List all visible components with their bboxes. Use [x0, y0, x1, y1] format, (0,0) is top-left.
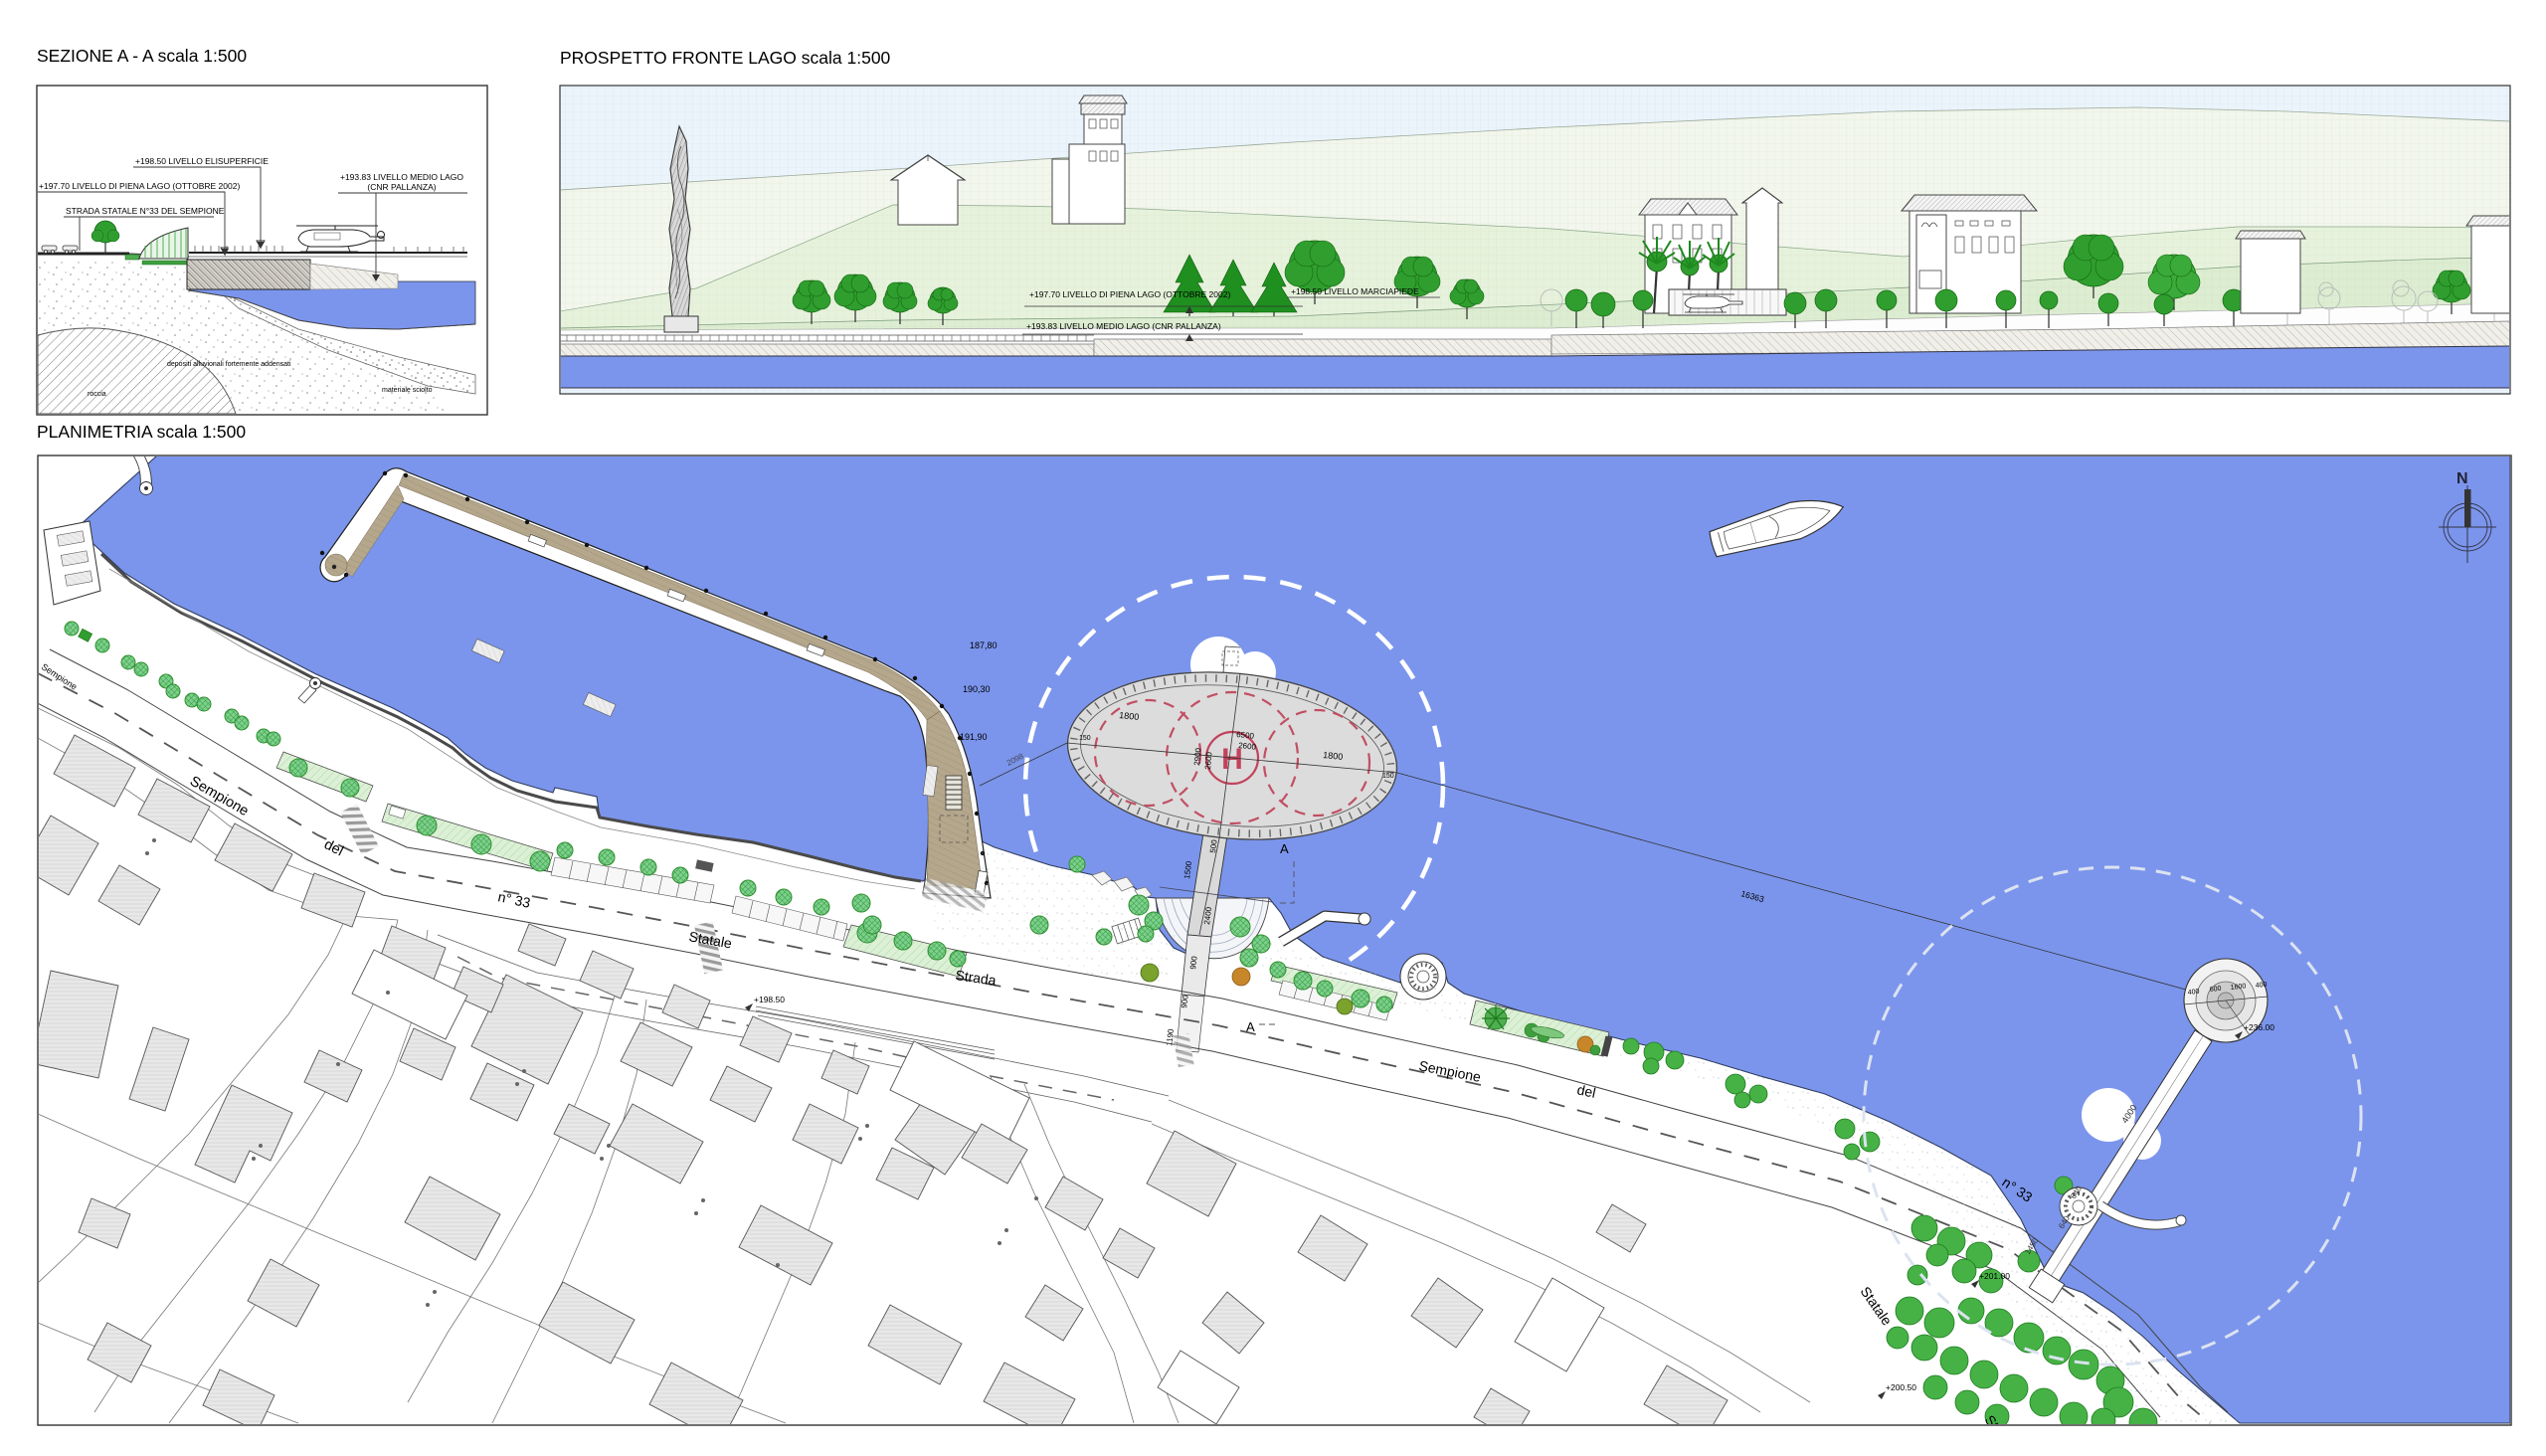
svg-text:+193.83 LIVELLO MEDIO LAGO: +193.83 LIVELLO MEDIO LAGO: [340, 172, 463, 182]
svg-text:400: 400: [2255, 982, 2267, 990]
svg-text:(CNR PALLANZA): (CNR PALLANZA): [367, 182, 436, 192]
svg-text:150: 150: [1382, 773, 1394, 780]
svg-text:A: A: [1280, 841, 1289, 856]
svg-text:1800: 1800: [1323, 750, 1344, 762]
svg-text:2600: 2600: [1203, 751, 1214, 770]
svg-text:+197.70 LIVELLO DI PIENA LAGO: +197.70 LIVELLO DI PIENA LAGO (OTTOBRE 2…: [39, 181, 240, 191]
svg-text:+198.50 LIVELLO MARCIAPIEDE: +198.50 LIVELLO MARCIAPIEDE: [1291, 286, 1419, 296]
svg-text:+236.00: +236.00: [2244, 1022, 2274, 1032]
svg-text:materiale sciolto: materiale sciolto: [382, 387, 433, 394]
svg-text:SEZIONE A - A scala 1:500: SEZIONE A - A scala 1:500: [37, 46, 247, 66]
svg-text:roccia: roccia: [88, 391, 106, 398]
svg-text:N: N: [2456, 470, 2468, 487]
svg-text:187,80: 187,80: [970, 640, 998, 650]
svg-text:900: 900: [1180, 994, 1190, 1008]
svg-text:191,90: 191,90: [960, 732, 988, 742]
svg-text:+201.00: +201.00: [1979, 1271, 2010, 1281]
svg-text:PLANIMETRIA scala 1:500: PLANIMETRIA scala 1:500: [37, 422, 246, 442]
svg-text:2900: 2900: [1192, 747, 1203, 766]
svg-text:depositi alluvionali fortement: depositi alluvionali fortemente addensat…: [167, 361, 291, 368]
svg-text:2600: 2600: [1238, 741, 1257, 752]
svg-text:STRADA STATALE N°33 DEL SEMPIO: STRADA STATALE N°33 DEL SEMPIONE: [66, 206, 225, 216]
svg-text:+198.50: +198.50: [754, 995, 785, 1004]
svg-text:500: 500: [1208, 838, 1219, 853]
svg-text:600: 600: [2209, 986, 2221, 994]
svg-text:+193.83 LIVELLO MEDIO LAGO (CN: +193.83 LIVELLO MEDIO LAGO (CNR PALLANZA…: [1026, 321, 1221, 331]
svg-text:900: 900: [1188, 955, 1199, 970]
svg-text:400: 400: [2187, 989, 2199, 997]
svg-text:PROSPETTO FRONTE LAGO scala 1: PROSPETTO FRONTE LAGO scala 1:500: [560, 48, 891, 68]
svg-text:+197.70 LIVELLO DI PIENA LAGO: +197.70 LIVELLO DI PIENA LAGO (OTTOBRE 2…: [1029, 289, 1230, 299]
svg-text:+198.50 LIVELLO ELISUPERFICIE: +198.50 LIVELLO ELISUPERFICIE: [135, 156, 269, 166]
svg-text:150: 150: [1079, 735, 1091, 742]
svg-text:+200.50: +200.50: [1886, 1382, 1916, 1392]
svg-text:6500: 6500: [1236, 730, 1255, 741]
svg-text:190,30: 190,30: [963, 684, 991, 694]
svg-text:1800: 1800: [1119, 710, 1140, 722]
